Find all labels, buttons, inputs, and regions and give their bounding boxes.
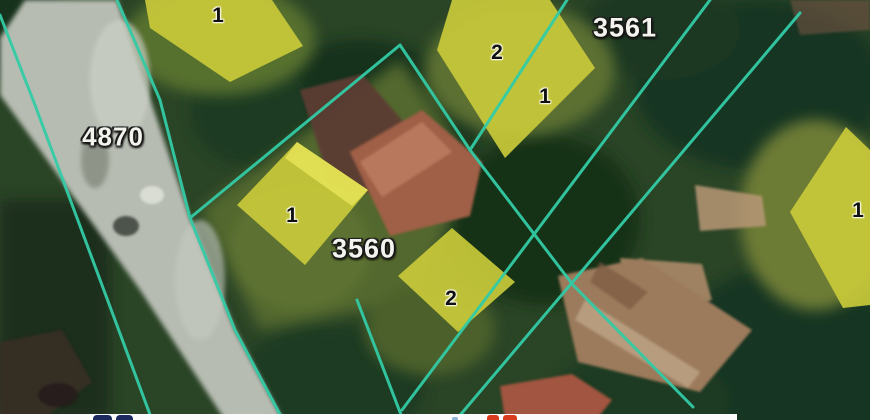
satellite-map-canvas xyxy=(0,0,870,420)
roof-top-right xyxy=(790,0,870,35)
road-light-blob xyxy=(140,186,164,204)
map-viewport[interactable]: 4870 3561 3560 1 2 1 1 2 1 xyxy=(0,0,870,420)
footer-logo-strip xyxy=(0,414,737,420)
logo-fragment-navy xyxy=(116,415,133,420)
logo-fragment-navy xyxy=(93,415,112,420)
road-dark-blob xyxy=(113,216,139,236)
logo-fragment-red xyxy=(487,415,499,420)
logo-fragment-red xyxy=(503,415,517,420)
